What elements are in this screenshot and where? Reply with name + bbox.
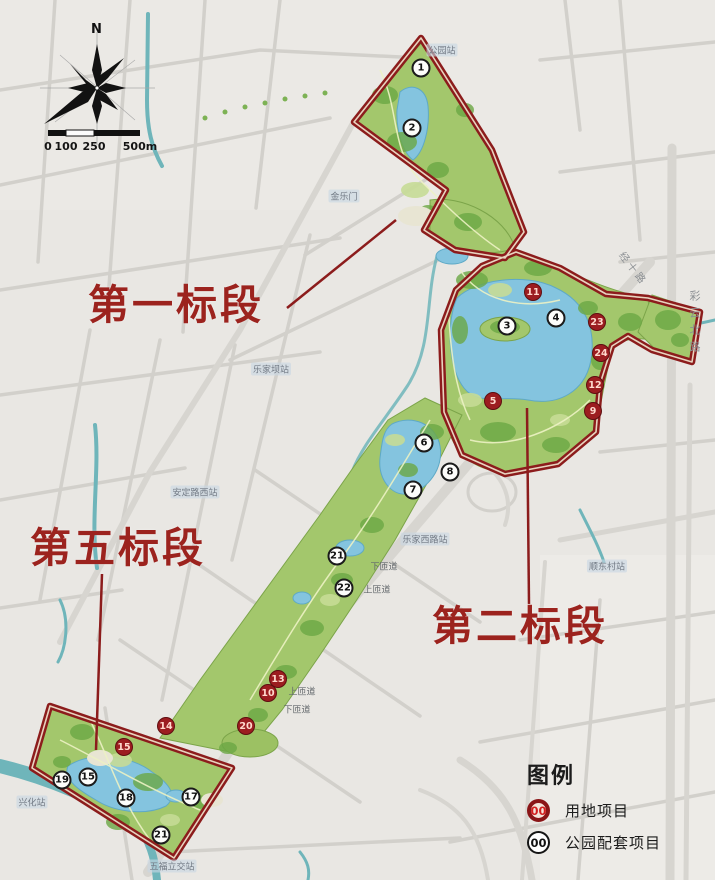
- section-label-fifth: 第五标段: [30, 528, 206, 569]
- red-marker-14: 14: [157, 717, 175, 735]
- section-label-first: 第一标段: [88, 285, 264, 326]
- scale-bar: 0 100 250 500m: [44, 126, 164, 158]
- road-label: 上匝道: [288, 685, 315, 698]
- station-label: 五福立交站: [147, 860, 196, 873]
- white-marker-6: 6: [415, 434, 434, 453]
- road-label: 下匝道: [283, 703, 310, 716]
- white-marker-4: 4: [547, 309, 566, 328]
- white-marker-2: 2: [403, 119, 422, 138]
- legend-title: 图例: [527, 758, 661, 790]
- legend-item-park-support-project: 00 公园配套项目: [527, 831, 661, 854]
- road-label: 下匝道: [370, 560, 397, 573]
- white-marker-1: 1: [412, 59, 431, 78]
- white-marker-15: 15: [79, 768, 98, 787]
- scale-tick: 500m: [123, 140, 157, 153]
- road-vertical-label: 彩云北路: [686, 290, 702, 358]
- station-label: 乐家西路站: [400, 533, 449, 546]
- section-label-second: 第二标段: [432, 606, 608, 647]
- station-label: 金乐门: [328, 190, 359, 203]
- station-label: 安定路西站: [170, 486, 219, 499]
- white-marker-7: 7: [404, 481, 423, 500]
- station-label: 顺东村站: [587, 560, 627, 573]
- park-planning-map: N 0 100 250 500m 第一标段 第五标段 第二标段 公园站金乐门乐家…: [0, 0, 715, 880]
- station-label: 兴化站: [16, 796, 47, 809]
- station-label: 乐家坝站: [251, 363, 291, 376]
- legend-item-label: 公园配套项目: [565, 832, 661, 853]
- white-marker-21: 21: [328, 547, 347, 566]
- legend-item-label: 用地项目: [565, 800, 629, 821]
- compass-north-label: N: [91, 22, 102, 37]
- red-marker-24: 24: [592, 344, 610, 362]
- white-marker-18: 18: [117, 789, 136, 808]
- red-marker-5: 5: [484, 392, 502, 410]
- station-label: 公园站: [426, 44, 457, 57]
- red-marker-10: 10: [259, 684, 277, 702]
- red-marker-15: 15: [115, 738, 133, 756]
- white-marker-17: 17: [182, 788, 201, 807]
- legend: 图例 00 用地项目 00 公园配套项目: [527, 758, 661, 854]
- red-marker-23: 23: [588, 313, 606, 331]
- red-marker-20: 20: [237, 717, 255, 735]
- red-marker-11: 11: [524, 283, 542, 301]
- white-marker-22: 22: [335, 579, 354, 598]
- road-label: 上匝道: [363, 583, 390, 596]
- legend-item-land-project: 00 用地项目: [527, 799, 661, 822]
- scale-tick: 250: [83, 140, 106, 153]
- white-marker-3: 3: [498, 317, 517, 336]
- red-marker-12: 12: [586, 376, 604, 394]
- white-marker-21: 21: [152, 826, 171, 845]
- white-marker-19: 19: [53, 771, 72, 790]
- scale-tick: 100: [55, 140, 78, 153]
- red-marker-9: 9: [584, 402, 602, 420]
- red-numbered-circle-symbol: 00: [527, 799, 550, 822]
- white-marker-8: 8: [441, 463, 460, 482]
- white-numbered-circle-symbol: 00: [527, 831, 550, 854]
- scale-tick: 0: [44, 140, 52, 153]
